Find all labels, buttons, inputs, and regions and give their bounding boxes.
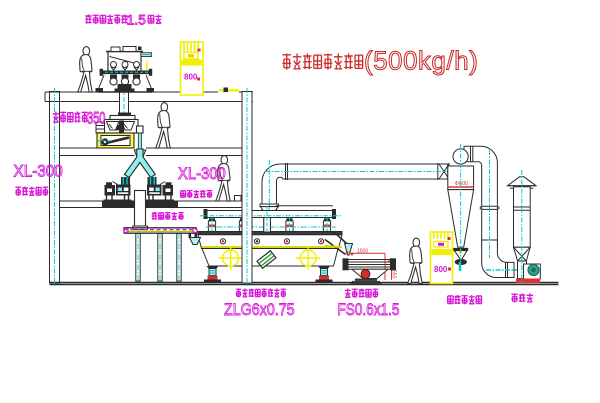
svg-text:XL-300: XL-300 bbox=[178, 165, 226, 183]
svg-text:550: 550 bbox=[391, 270, 397, 279]
svg-text:800: 800 bbox=[434, 265, 448, 274]
svg-text:1.5: 1.5 bbox=[127, 12, 147, 28]
svg-text:ZLG6x0.75: ZLG6x0.75 bbox=[224, 301, 295, 319]
svg-text:XL-300: XL-300 bbox=[14, 162, 63, 181]
svg-text:FS0.6x1.5: FS0.6x1.5 bbox=[338, 301, 400, 320]
svg-text:(500kg/h): (500kg/h) bbox=[364, 48, 478, 76]
svg-text:Φ600: Φ600 bbox=[455, 181, 469, 187]
svg-text:1500: 1500 bbox=[357, 249, 368, 255]
svg-text:350: 350 bbox=[87, 108, 106, 127]
svg-text:800: 800 bbox=[184, 73, 198, 82]
